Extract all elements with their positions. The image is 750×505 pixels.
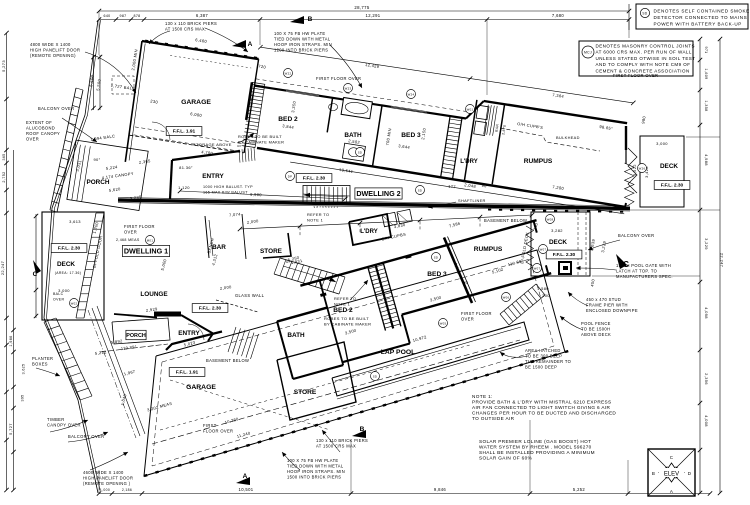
svg-text:NOTE 1:: NOTE 1: (472, 394, 493, 399)
svg-text:TO OUTSIDE AIR: TO OUTSIDE AIR (472, 416, 515, 421)
svg-text:DECK: DECK (549, 239, 567, 246)
svg-text:C: C (670, 455, 674, 460)
svg-text:ENTRY: ENTRY (202, 173, 224, 180)
svg-text:A: A (248, 41, 253, 48)
svg-text:7,074: 7,074 (229, 211, 242, 217)
svg-text:971: 971 (704, 46, 708, 53)
svg-text:200: 200 (542, 293, 550, 298)
svg-text:SD: SD (358, 150, 363, 154)
svg-text:1,609: 1,609 (704, 68, 708, 79)
svg-text:W24: W24 (408, 92, 415, 96)
svg-text:OVER: OVER (26, 137, 39, 142)
svg-text:TO BE 300 DEEP: TO BE 300 DEEP (525, 354, 562, 359)
svg-text:4,008: 4,008 (704, 415, 709, 427)
svg-text:W05: W05 (440, 321, 447, 325)
svg-text:ROBES TO BE BUILT: ROBES TO BE BUILT (324, 316, 369, 321)
svg-text:BASEMENT BELOW: BASEMENT BELOW (206, 358, 249, 363)
svg-text:UP: UP (286, 260, 291, 264)
svg-text:BAR: BAR (212, 244, 226, 251)
svg-text:PORCH: PORCH (86, 179, 109, 186)
svg-text:OVER: OVER (461, 317, 474, 322)
svg-text:UNLESS STATED OTWISE IN SOIL T: UNLESS STATED OTWISE IN SOIL TEST (596, 56, 696, 61)
svg-text:A: A (670, 489, 673, 494)
svg-text:4,098: 4,098 (704, 307, 709, 319)
svg-text:BED 2: BED 2 (333, 307, 353, 314)
svg-text:130 x 110 BRICK PIERS: 130 x 110 BRICK PIERS (316, 438, 368, 443)
svg-text:TO BE 1500H: TO BE 1500H (581, 327, 610, 332)
svg-text:FRAME PIER WITH: FRAME PIER WITH (586, 303, 628, 308)
svg-text:SD: SD (418, 188, 423, 192)
svg-text:1000 HIGH BALUST. TYP: 1000 HIGH BALUST. TYP (203, 185, 253, 189)
svg-text:W08: W08 (547, 217, 554, 221)
svg-text:AND TO COMPLY WITH NOTE CM9 OF: AND TO COMPLY WITH NOTE CM9 OF (596, 62, 691, 67)
svg-text:1,358: 1,358 (704, 100, 708, 111)
svg-text:SOLAR PREMIER LOLINE (GAS BOOS: SOLAR PREMIER LOLINE (GAS BOOST) HOT (479, 439, 591, 444)
svg-text:TIED DOWN WITH METAL: TIED DOWN WITH METAL (274, 37, 331, 42)
svg-text:W01: W01 (467, 107, 474, 111)
svg-text:22,247: 22,247 (720, 253, 725, 268)
svg-text:B: B (360, 426, 365, 433)
svg-text:BY CABINATE MAKER: BY CABINATE MAKER (324, 322, 371, 327)
svg-text:F.F.L. 2.30: F.F.L. 2.30 (553, 252, 576, 258)
svg-text:22,247: 22,247 (0, 260, 5, 275)
svg-text:SHAFTLINER: SHAFTLINER (458, 198, 486, 203)
svg-text:FIRST: FIRST (203, 423, 217, 428)
svg-text:FIRST FLOOR: FIRST FLOOR (461, 311, 492, 316)
svg-text:C: C (33, 271, 38, 278)
svg-text:THE REMAINDER TO: THE REMAINDER TO (525, 359, 571, 364)
svg-text:3,613: 3,613 (69, 219, 81, 224)
svg-text:B: B (652, 471, 655, 476)
svg-text:395: 395 (21, 394, 25, 401)
svg-text:FIRST FLOOR: FIRST FLOOR (124, 224, 155, 229)
svg-text:FIRST FLOOR OVER: FIRST FLOOR OVER (613, 73, 658, 78)
svg-text:BASEMENT BELOW: BASEMENT BELOW (484, 218, 527, 223)
svg-text:GARAGE: GARAGE (181, 99, 211, 106)
svg-text:1,580: 1,580 (537, 286, 549, 291)
svg-text:2,752: 2,752 (2, 171, 6, 182)
svg-text:BULKHEAD: BULKHEAD (556, 135, 580, 140)
svg-text:GLASS WALL: GLASS WALL (235, 293, 265, 298)
svg-text:3,625: 3,625 (22, 364, 26, 375)
svg-text:AIR FAN CONNECTED TO LIGHT SWI: AIR FAN CONNECTED TO LIGHT SWITCH GIVING… (472, 405, 611, 410)
svg-text:MANUFACTURERS SPEC.: MANUFACTURERS SPEC. (616, 274, 673, 279)
svg-text:W26: W26 (639, 166, 646, 170)
svg-text:MCJ: MCJ (584, 51, 592, 55)
svg-text:F.F.L. 2.30: F.F.L. 2.30 (58, 246, 81, 252)
svg-text:5,252: 5,252 (573, 487, 586, 492)
svg-text:WATER SYSTEM BY RHEEM . MODEL: WATER SYSTEM BY RHEEM . MODEL 596270 (479, 445, 592, 450)
svg-text:STORAGE ABOVE: STORAGE ABOVE (193, 142, 232, 147)
svg-text:F.F.L. 2.30: F.F.L. 2.30 (303, 176, 326, 182)
svg-text:4,988: 4,988 (704, 154, 709, 166)
svg-text:SD: SD (434, 255, 439, 259)
svg-text:(REMOTE OPENING ): (REMOTE OPENING ) (83, 481, 131, 486)
svg-text:ROOF CANOPY: ROOF CANOPY (26, 131, 60, 136)
svg-text:F.F.L. 1.91: F.F.L. 1.91 (173, 129, 196, 135)
svg-text:TIMBER: TIMBER (47, 417, 65, 422)
svg-text:ELEV: ELEV (664, 472, 679, 478)
svg-text:DECK: DECK (660, 163, 678, 170)
svg-text:C: C (623, 260, 629, 269)
svg-text:81.36°: 81.36° (179, 165, 193, 170)
svg-text:HIGH PANELIFT DOOR: HIGH PANELIFT DOOR (83, 476, 133, 481)
svg-text:AREA HATCHED: AREA HATCHED (525, 348, 561, 353)
svg-text:3,000: 3,000 (656, 141, 668, 146)
svg-text:B: B (308, 16, 313, 23)
svg-text:W06: W06 (503, 295, 510, 299)
svg-text:4800 WIDE X 1400: 4800 WIDE X 1400 (30, 42, 71, 47)
svg-text:100 X 75 FB HW PLATE: 100 X 75 FB HW PLATE (274, 31, 326, 36)
svg-text:365: 365 (2, 153, 6, 160)
svg-text:REFER TO: REFER TO (307, 212, 329, 217)
svg-text:EXTENT OF: EXTENT OF (26, 120, 52, 125)
svg-text:1,120: 1,120 (178, 185, 190, 190)
svg-text:AT 1500 CRS MAX.: AT 1500 CRS MAX. (165, 27, 207, 32)
svg-text:DWELLING 2: DWELLING 2 (356, 189, 400, 198)
svg-text:SOLAR GAIN OF 60%: SOLAR GAIN OF 60% (479, 456, 532, 461)
svg-text:100 X 75 FB HW PLATE: 100 X 75 FB HW PLATE (287, 458, 339, 463)
svg-text:LOUNGE: LOUNGE (140, 291, 168, 298)
svg-text:ABOVE DECK: ABOVE DECK (581, 332, 611, 337)
svg-text:BALCONY OVER: BALCONY OVER (68, 434, 104, 439)
svg-text:SD: SD (642, 12, 647, 16)
svg-text:HOOP IRON STRAPS. MIN: HOOP IRON STRAPS. MIN (274, 42, 332, 47)
svg-text:2,186: 2,186 (122, 488, 132, 492)
svg-text:AT 1500 CRS MAX: AT 1500 CRS MAX (316, 444, 356, 449)
svg-text:DETECTOR CONNECTED TO MAINS: DETECTOR CONNECTED TO MAINS (654, 15, 748, 20)
svg-text:FLOOR OVER: FLOOR OVER (203, 429, 233, 434)
svg-text:12,291: 12,291 (366, 13, 381, 18)
svg-text:BED 3: BED 3 (427, 271, 447, 278)
svg-text:130 x 110 BRICK PIERS: 130 x 110 BRICK PIERS (165, 21, 217, 26)
svg-text:2,356: 2,356 (704, 373, 709, 385)
svg-text:BATH: BATH (287, 332, 305, 339)
svg-text:W07: W07 (540, 247, 547, 251)
svg-text:BED 3: BED 3 (401, 132, 421, 139)
svg-text:F.F.L. 2.30: F.F.L. 2.30 (661, 183, 684, 189)
svg-text:PROVIDE BATH & L'DRY WITH MIST: PROVIDE BATH & L'DRY WITH MISTRAL 6210 E… (472, 400, 612, 405)
svg-text:1200 INTO BRICK PIERS: 1200 INTO BRICK PIERS (274, 48, 328, 53)
svg-text:RUMPUS: RUMPUS (474, 246, 503, 253)
svg-text:W07: W07 (534, 266, 541, 270)
svg-text:L'DRY: L'DRY (460, 159, 478, 165)
svg-text:450 x 470 STUD: 450 x 470 STUD (586, 297, 621, 302)
svg-text:BOXES: BOXES (32, 362, 48, 367)
svg-text:W22: W22 (285, 71, 292, 75)
svg-text:BY CABINATE MAKER: BY CABINATE MAKER (238, 140, 284, 145)
svg-text:PORCH: PORCH (126, 333, 146, 339)
svg-text:(REMOTE OPENING): (REMOTE OPENING) (30, 53, 76, 58)
svg-text:CHANGES PER HOUR TO BE DUCTED: CHANGES PER HOUR TO BE DUCTED AND DISCHA… (472, 411, 616, 416)
svg-text:UP: UP (237, 144, 242, 148)
svg-text:1,000: 1,000 (100, 488, 110, 492)
svg-text:7,680: 7,680 (552, 13, 565, 18)
svg-text:3,282: 3,282 (551, 228, 563, 233)
svg-text:9,846: 9,846 (434, 487, 447, 492)
svg-text:STORE: STORE (294, 389, 317, 396)
svg-text:GARAGE: GARAGE (186, 384, 216, 391)
svg-text:4,522: 4,522 (632, 164, 637, 176)
svg-text:F.F.L. 1.91: F.F.L. 1.91 (176, 370, 199, 376)
svg-text:AT 6000 CRS MAX. PER RUN OF WA: AT 6000 CRS MAX. PER RUN OF WALL (596, 50, 692, 55)
svg-text:90°: 90° (93, 157, 100, 162)
svg-text:4600 WIDE X 1400: 4600 WIDE X 1400 (83, 470, 124, 475)
svg-text:ALUCOBOND: ALUCOBOND (26, 126, 55, 131)
svg-text:RUMPUS: RUMPUS (524, 158, 553, 165)
svg-text:5,727: 5,727 (8, 423, 13, 435)
svg-text:6,387: 6,387 (196, 13, 209, 18)
svg-text:10,501: 10,501 (239, 487, 254, 492)
svg-text:1500 INTO BRICK PIERS: 1500 INTO BRICK PIERS (287, 475, 341, 480)
svg-text:W02: W02 (71, 301, 78, 305)
svg-text:ENCLOSED DOWNPIPE: ENCLOSED DOWNPIPE (586, 308, 638, 313)
svg-text:L'DRY: L'DRY (360, 229, 378, 235)
svg-text:SD: SD (373, 374, 378, 378)
svg-text:(AREA: 17.36): (AREA: 17.36) (55, 271, 81, 275)
svg-text:STORE: STORE (260, 248, 283, 255)
svg-text:W23: W23 (345, 86, 352, 90)
svg-text:HOOP IRON STRAPS. MIN: HOOP IRON STRAPS. MIN (287, 469, 345, 474)
svg-text:FIRST FLOOR OVER: FIRST FLOOR OVER (316, 76, 361, 81)
svg-text:987: 987 (119, 14, 126, 18)
svg-text:A: A (243, 473, 248, 480)
svg-text:POOL FENCE: POOL FENCE (581, 321, 611, 326)
svg-text:5,273: 5,273 (1, 60, 6, 72)
svg-text:LATCH AT TOP. TO: LATCH AT TOP. TO (616, 269, 657, 274)
svg-text:3,229: 3,229 (704, 238, 709, 250)
svg-text:BALCONY OVER: BALCONY OVER (618, 233, 654, 238)
svg-text:BED 2: BED 2 (278, 116, 298, 123)
svg-text:POWER WITH BATTERY BACK-UP: POWER WITH BATTERY BACK-UP (654, 21, 742, 26)
svg-text:OVER: OVER (53, 298, 64, 302)
svg-text:D: D (688, 471, 692, 476)
svg-text:LAP POOL: LAP POOL (381, 349, 416, 356)
svg-text:DENOTES SELF CONTAINED SMOKE: DENOTES SELF CONTAINED SMOKE (654, 9, 750, 14)
svg-text:BALCONY OVER: BALCONY OVER (38, 106, 74, 111)
svg-text:DP: DP (288, 174, 293, 178)
svg-text:NOTE 1: NOTE 1 (334, 302, 350, 307)
svg-text:DECK: DECK (57, 261, 75, 268)
svg-text:M01: M01 (147, 238, 154, 242)
svg-text:DWELLING 1: DWELLING 1 (124, 247, 168, 256)
svg-text:3,000: 3,000 (58, 288, 70, 293)
svg-text:SHALL BE INSTALLED PROVIDING A: SHALL BE INSTALLED PROVIDING A MINIMUM (479, 450, 595, 455)
svg-text:ENTRY: ENTRY (178, 330, 200, 337)
svg-text:2,468 MEAS: 2,468 MEAS (116, 238, 140, 242)
svg-text:NOTE 1: NOTE 1 (307, 218, 323, 223)
svg-text:ROBES TO BE BUILT: ROBES TO BE BUILT (238, 134, 282, 139)
svg-text:878: 878 (133, 14, 140, 18)
svg-text:BE 1500 DEEP: BE 1500 DEEP (525, 365, 557, 370)
svg-text:PLANTER: PLANTER (32, 356, 53, 361)
svg-text:28,775: 28,775 (354, 5, 370, 10)
svg-text:DENOTES MASONRY CONTROL JOINTS: DENOTES MASONRY CONTROL JOINTS (596, 44, 695, 49)
svg-text:HIGH PANELIFT DOOR: HIGH PANELIFT DOOR (30, 48, 80, 53)
svg-text:OVER: OVER (124, 230, 137, 235)
svg-text:1,986: 1,986 (9, 335, 13, 346)
svg-text:640: 640 (103, 14, 110, 18)
svg-text:F.F.L. 2.30: F.F.L. 2.30 (199, 306, 222, 312)
